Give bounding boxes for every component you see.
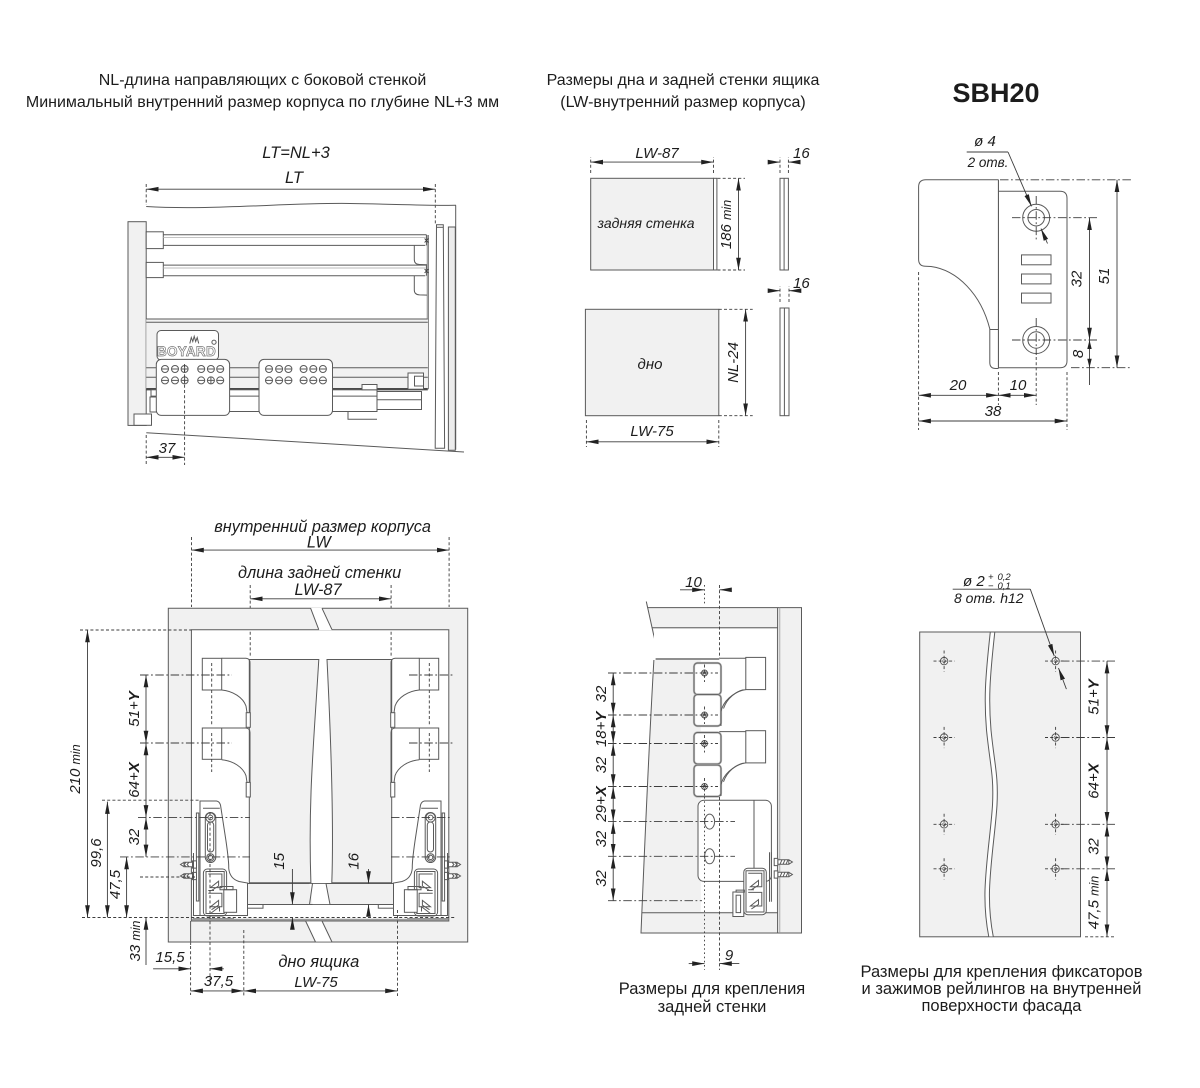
svg-text:51+Y: 51+Y <box>1086 677 1103 714</box>
svg-text:длина задней стенки: длина задней стенки <box>238 564 401 582</box>
svg-text:15: 15 <box>271 852 288 869</box>
svg-text:29+X: 29+X <box>593 785 610 822</box>
svg-text:210 min: 210 min <box>67 744 84 794</box>
svg-text:32: 32 <box>126 828 143 845</box>
svg-text:10: 10 <box>685 574 702 591</box>
svg-text:64+X: 64+X <box>126 761 143 797</box>
svg-text:и зажимов рейлингов на внутрен: и зажимов рейлингов на внутренней <box>862 980 1142 998</box>
svg-text:10: 10 <box>1010 377 1027 394</box>
svg-text:33 min: 33 min <box>127 920 144 961</box>
svg-text:32: 32 <box>593 685 610 702</box>
svg-text:LW: LW <box>307 534 332 552</box>
svg-text:32: 32 <box>1086 838 1103 855</box>
svg-text:дно ящика: дно ящика <box>278 953 359 971</box>
svg-text:поверхности фасада: поверхности фасада <box>922 997 1083 1015</box>
svg-text:LT=NL+3: LT=NL+3 <box>262 144 330 162</box>
svg-text:32: 32 <box>593 756 610 773</box>
svg-text:64+X: 64+X <box>1086 762 1103 798</box>
svg-text:51+Y: 51+Y <box>126 689 143 726</box>
svg-text:15,5: 15,5 <box>155 949 185 966</box>
svg-text:32: 32 <box>593 830 610 847</box>
svg-text:16: 16 <box>793 275 810 292</box>
svg-text:8: 8 <box>1070 349 1087 358</box>
svg-text:задняя стенка: задняя стенка <box>597 215 695 231</box>
svg-text:38: 38 <box>985 403 1002 420</box>
svg-text:Размеры дна и задней стенки ящ: Размеры дна и задней стенки ящика <box>547 72 820 89</box>
svg-text:Минимальный внутренний размер: Минимальный внутренний размер корпуса по… <box>26 94 499 111</box>
svg-text:186 min: 186 min <box>718 200 735 249</box>
svg-text:Размеры для крепления: Размеры для крепления <box>619 980 806 998</box>
svg-text:BOYARD: BOYARD <box>157 344 216 359</box>
svg-text:LW-75: LW-75 <box>630 423 674 440</box>
svg-text:LW-75: LW-75 <box>294 974 338 991</box>
svg-text:18+Y: 18+Y <box>593 710 610 747</box>
svg-text:ø 4: ø 4 <box>974 133 996 150</box>
svg-text:дно: дно <box>638 356 663 373</box>
svg-text:LW-87: LW-87 <box>635 145 679 162</box>
svg-text:37,5: 37,5 <box>204 973 234 990</box>
svg-text:2 отв.: 2 отв. <box>967 155 1009 170</box>
svg-text:47,5 min: 47,5 min <box>1086 876 1103 930</box>
svg-text:Размеры для крепления фиксатор: Размеры для крепления фиксаторов <box>860 963 1142 981</box>
svg-text:47,5: 47,5 <box>107 869 124 899</box>
svg-text:LW-87: LW-87 <box>294 581 342 599</box>
svg-text:NL-длина направляющих с боково: NL-длина направляющих с боковой стенкой <box>99 72 427 89</box>
svg-text:99,6: 99,6 <box>88 838 105 868</box>
svg-text:8 отв. h12: 8 отв. h12 <box>954 590 1024 606</box>
svg-text:ø 2: ø 2 <box>963 573 985 590</box>
svg-text:SBH20: SBH20 <box>952 78 1039 108</box>
svg-text:LT: LT <box>285 169 305 187</box>
svg-text:NL-24: NL-24 <box>725 342 742 383</box>
svg-text:20: 20 <box>949 377 967 394</box>
svg-text:9: 9 <box>725 947 734 964</box>
svg-text:51: 51 <box>1096 268 1113 285</box>
svg-text:задней стенки: задней стенки <box>658 998 767 1016</box>
svg-text:37: 37 <box>159 440 176 457</box>
svg-text:32: 32 <box>1069 270 1086 287</box>
svg-text:32: 32 <box>593 870 610 887</box>
svg-text:16: 16 <box>345 852 362 869</box>
svg-text:16: 16 <box>793 145 810 162</box>
svg-text:(LW-внутренний размер корпуса): (LW-внутренний размер корпуса) <box>560 94 806 111</box>
